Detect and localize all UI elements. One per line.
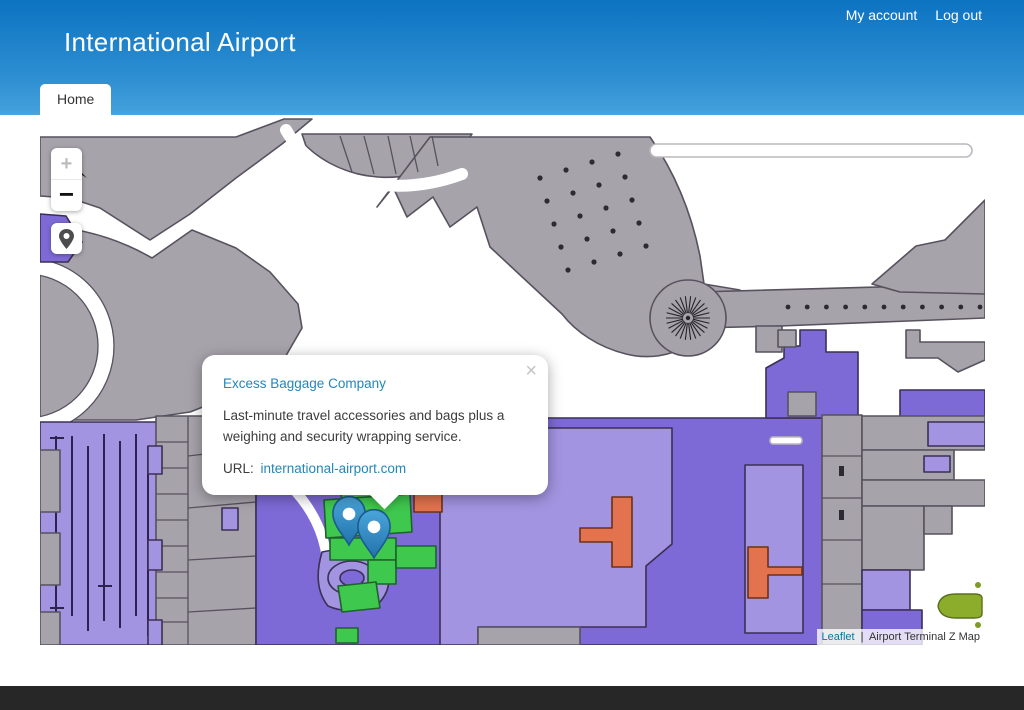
page-title: International Airport xyxy=(64,27,296,58)
popup-url-line: URL: international-airport.com xyxy=(223,461,526,476)
aircraft-icon xyxy=(938,582,982,628)
zoom-in-button[interactable]: + xyxy=(51,148,82,179)
top-nav: My account Log out xyxy=(846,7,982,23)
map-attribution: Leaflet | Airport Terminal Z Map xyxy=(817,629,985,645)
terminal-map-canvas[interactable]: + − Excess Baggage Company Last-minute t… xyxy=(40,116,985,645)
popup-url-label: URL: xyxy=(223,461,254,476)
app-header: International Airport My account Log out… xyxy=(0,0,1024,115)
walkway-pill xyxy=(650,144,972,157)
popup-description: Last-minute travel accessories and bags … xyxy=(223,406,526,448)
map-popup: Excess Baggage Company Last-minute trave… xyxy=(202,355,548,495)
leaflet-link[interactable]: Leaflet xyxy=(822,631,855,643)
tab-home[interactable]: Home xyxy=(40,84,111,115)
popup-close-button[interactable]: × xyxy=(525,361,537,381)
log-out-link[interactable]: Log out xyxy=(935,7,982,23)
popup-title: Excess Baggage Company xyxy=(223,375,526,393)
popup-title-link[interactable]: Excess Baggage Company xyxy=(223,376,386,391)
zoom-control: + − xyxy=(51,148,82,211)
page: International Airport My account Log out… xyxy=(0,0,1024,710)
location-pin-icon xyxy=(58,228,75,250)
page-footer xyxy=(0,686,1024,710)
attribution-text: Airport Terminal Z Map xyxy=(869,631,980,643)
attribution-separator: | xyxy=(861,631,864,643)
popup-url-link[interactable]: international-airport.com xyxy=(261,461,407,476)
my-account-link[interactable]: My account xyxy=(846,7,918,23)
marker-layer-button[interactable] xyxy=(51,223,82,254)
zoom-out-button[interactable]: − xyxy=(51,180,82,211)
